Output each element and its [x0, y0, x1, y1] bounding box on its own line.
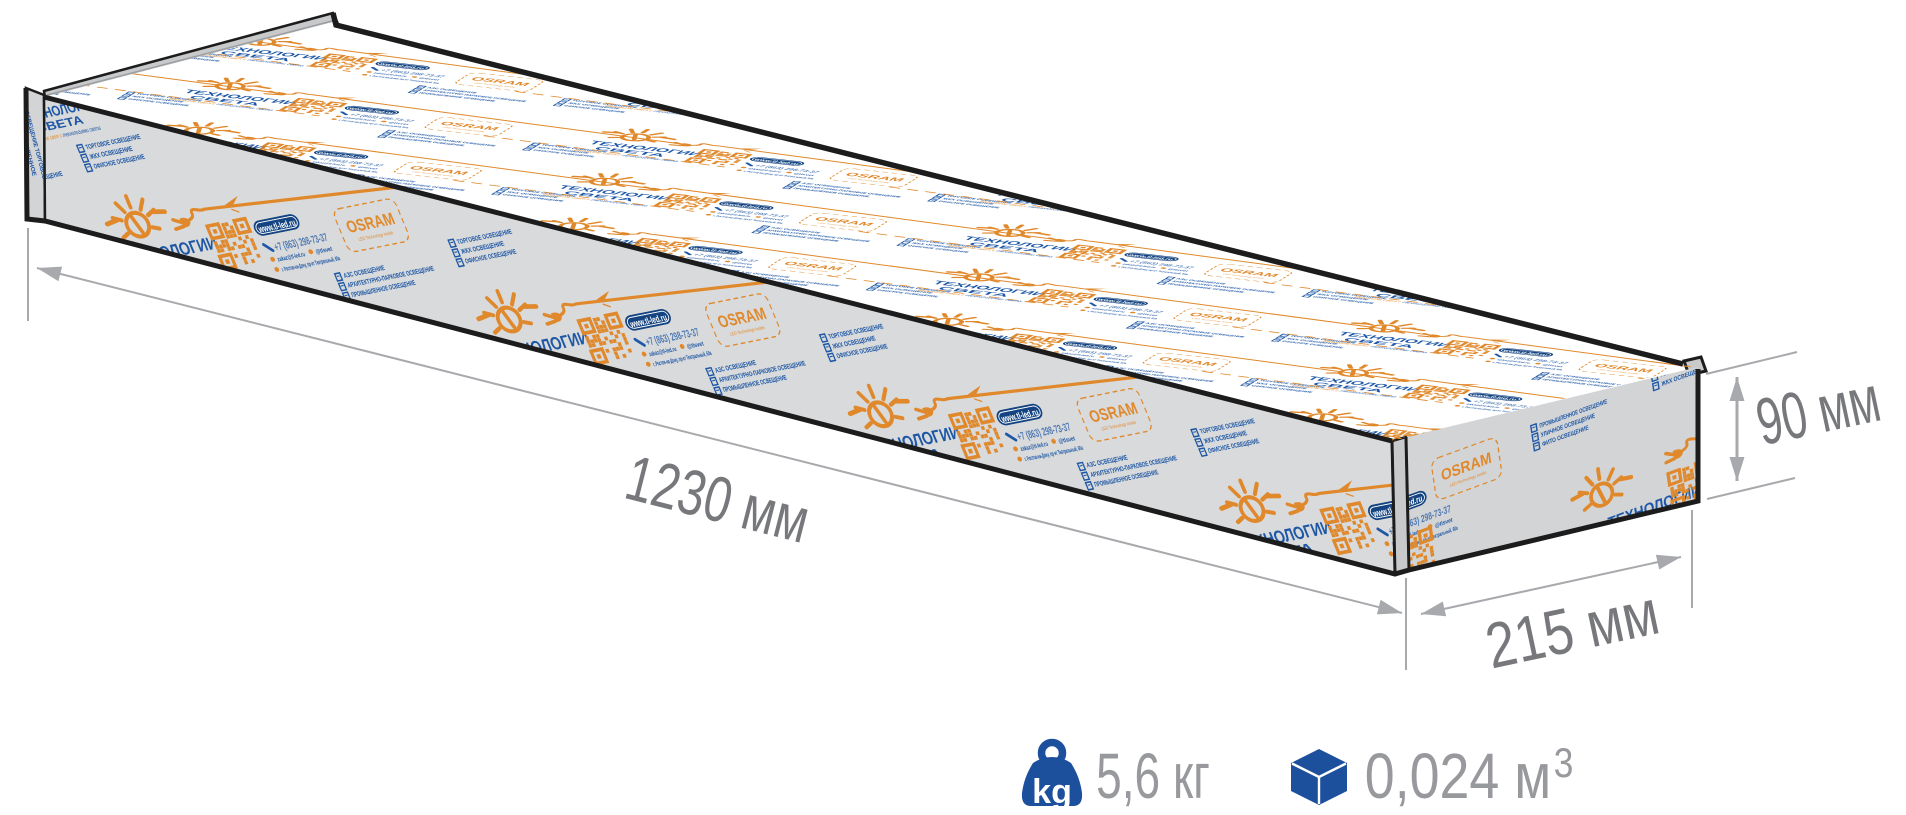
- svg-text:5,6 кг: 5,6 кг: [1096, 741, 1210, 812]
- svg-text:3: 3: [1554, 740, 1574, 787]
- svg-text:0,024 м: 0,024 м: [1365, 740, 1551, 813]
- svg-text:kg: kg: [1032, 773, 1072, 811]
